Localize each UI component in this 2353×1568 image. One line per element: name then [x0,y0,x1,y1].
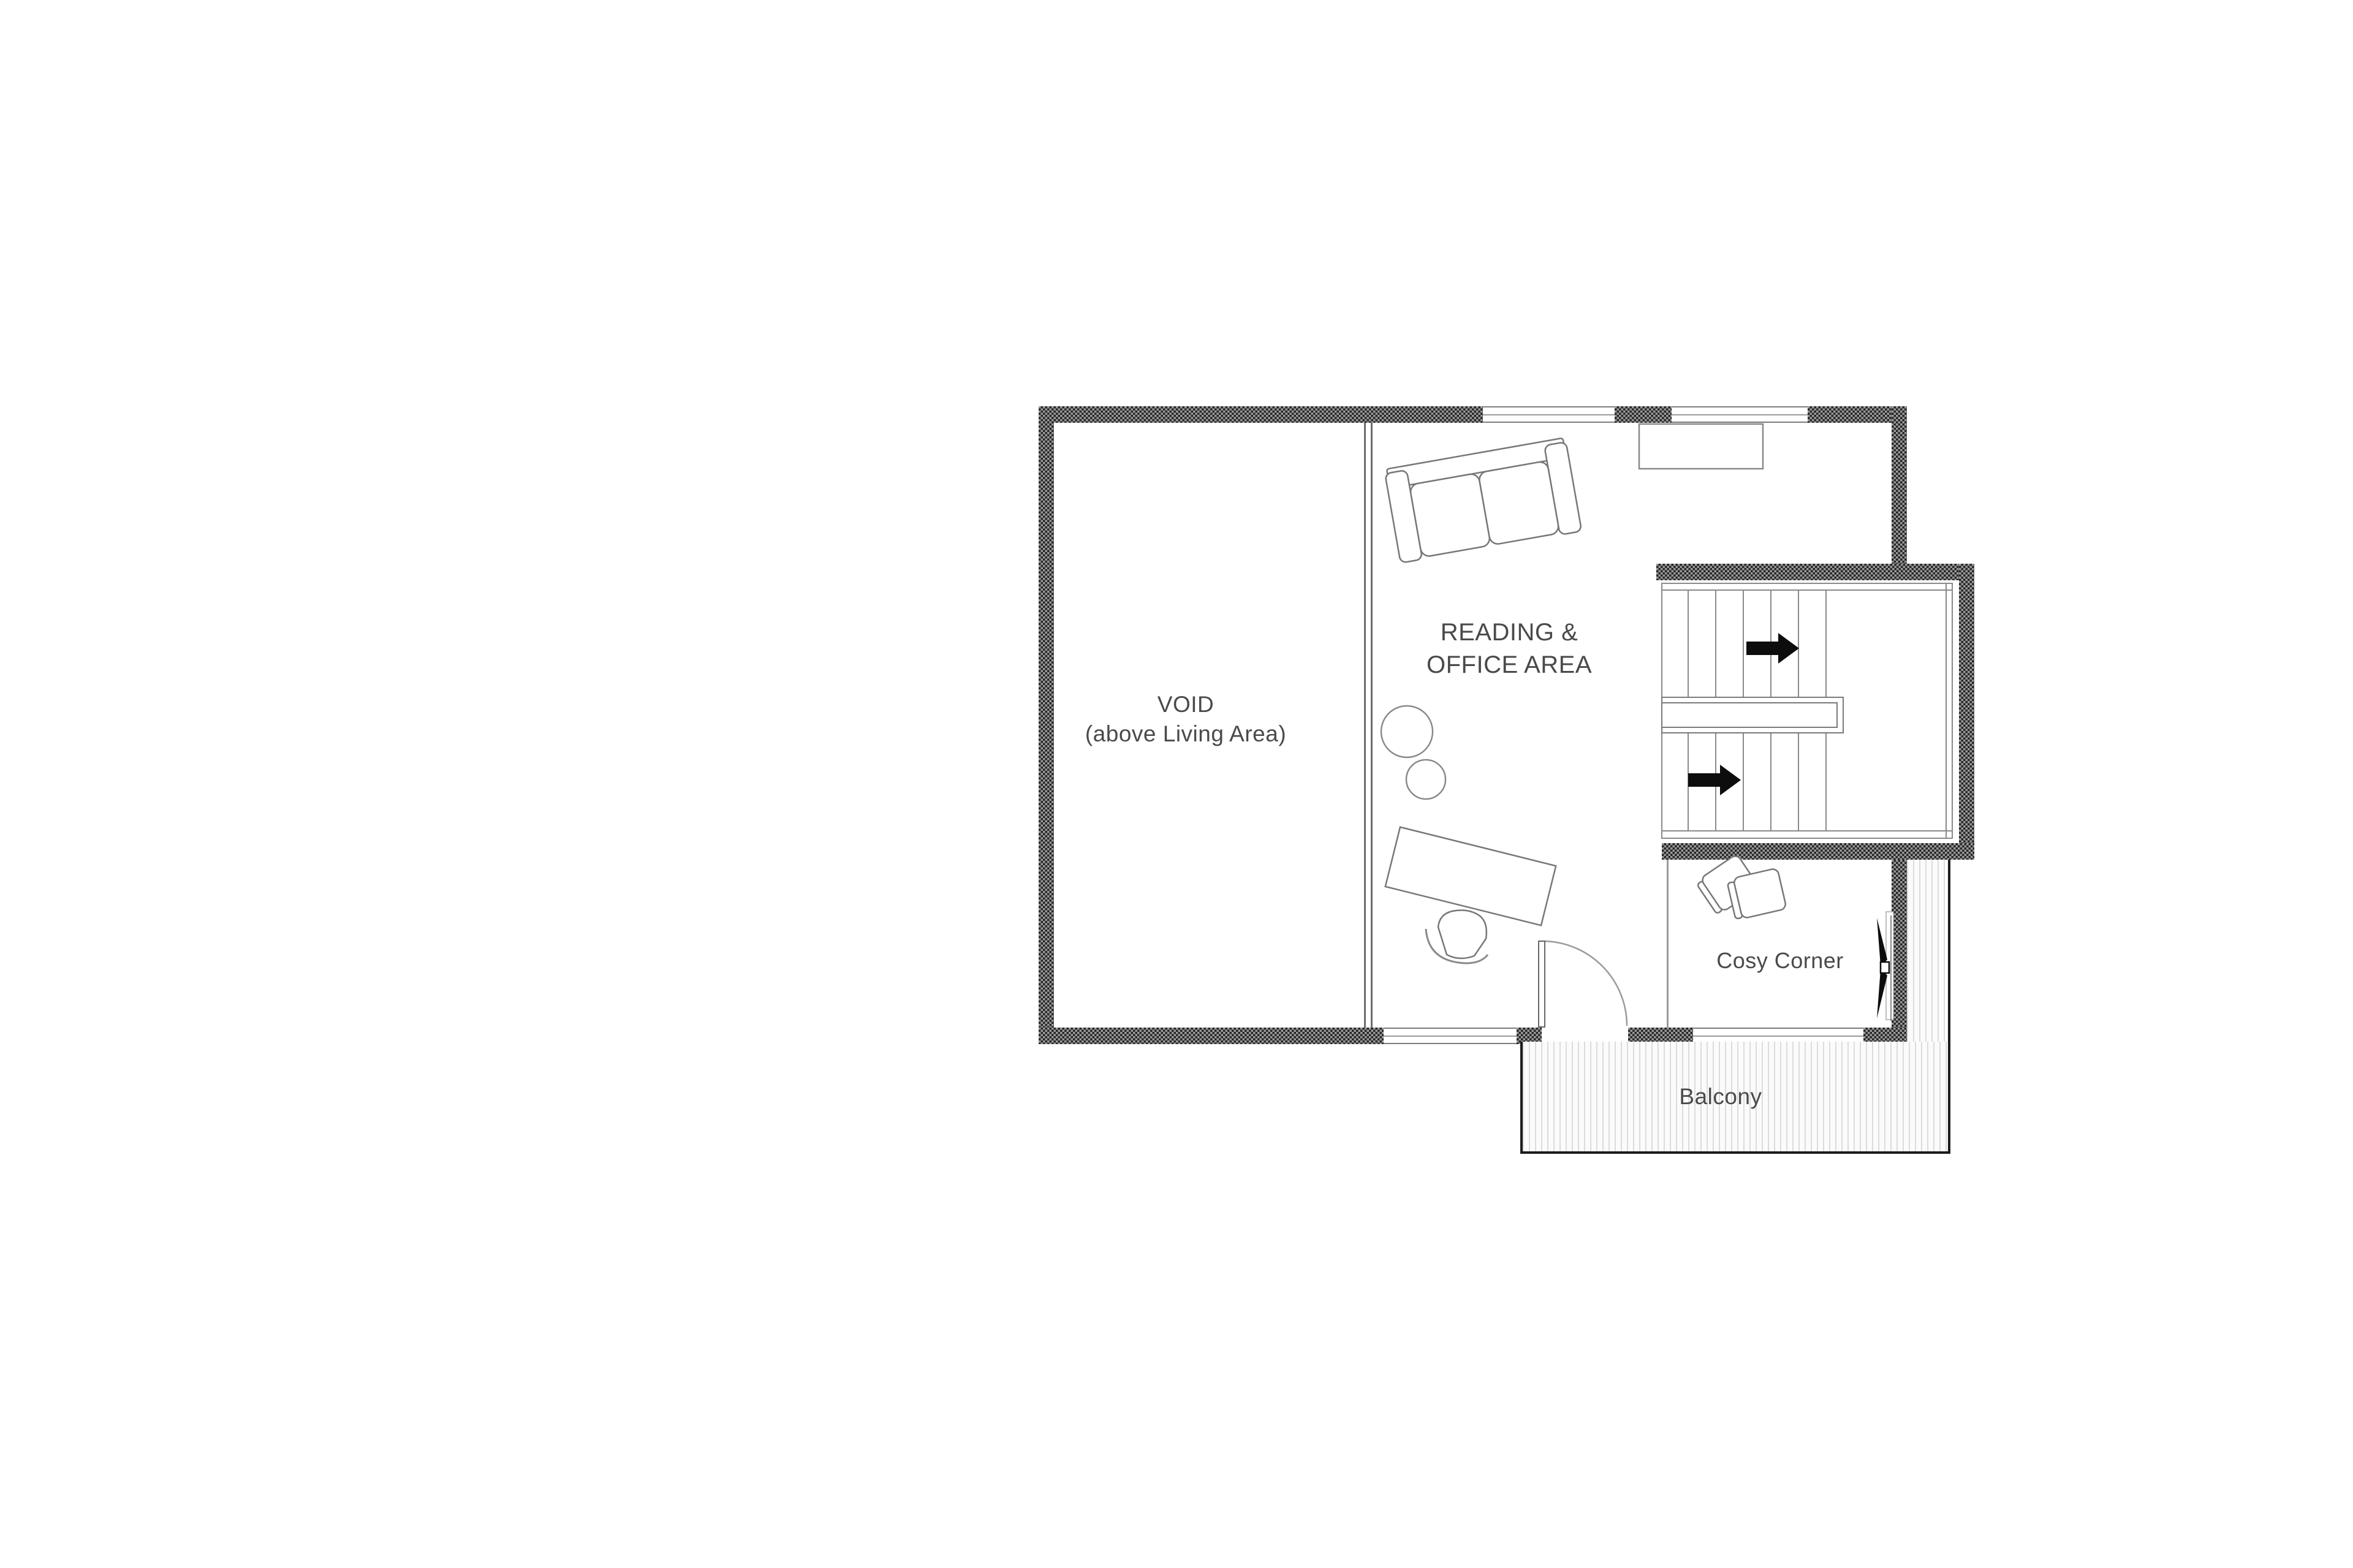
staircase [1662,583,1952,838]
void-label-line2: (above Living Area) [1063,719,1308,749]
desk [1385,827,1556,925]
desk-chair [1426,911,1488,963]
wall-mounted-tv-icon [1877,912,1893,1021]
sofa [1384,437,1582,563]
stair-arrow-upper-icon [1746,633,1799,664]
round-table-large [1381,706,1433,757]
round-table-small [1406,760,1446,799]
reading-label-line1: READING & [1387,616,1632,649]
floor-plan: VOID (above Living Area) READING & OFFIC… [0,0,2353,1568]
balcony-label: Balcony [1629,1085,1813,1109]
void-label-line1: VOID [1063,690,1308,719]
void-room-label: VOID (above Living Area) [1063,690,1308,749]
cosy-corner-label: Cosy Corner [1688,949,1872,973]
stair-arrow-lower-icon [1688,765,1741,795]
sideboard [1639,424,1763,469]
door [1539,941,1627,1027]
plan-linework [0,0,2353,1568]
reading-office-room-label: READING & OFFICE AREA [1387,616,1632,681]
reading-label-line2: OFFICE AREA [1387,649,1632,681]
stair-handrail [1662,697,1843,733]
